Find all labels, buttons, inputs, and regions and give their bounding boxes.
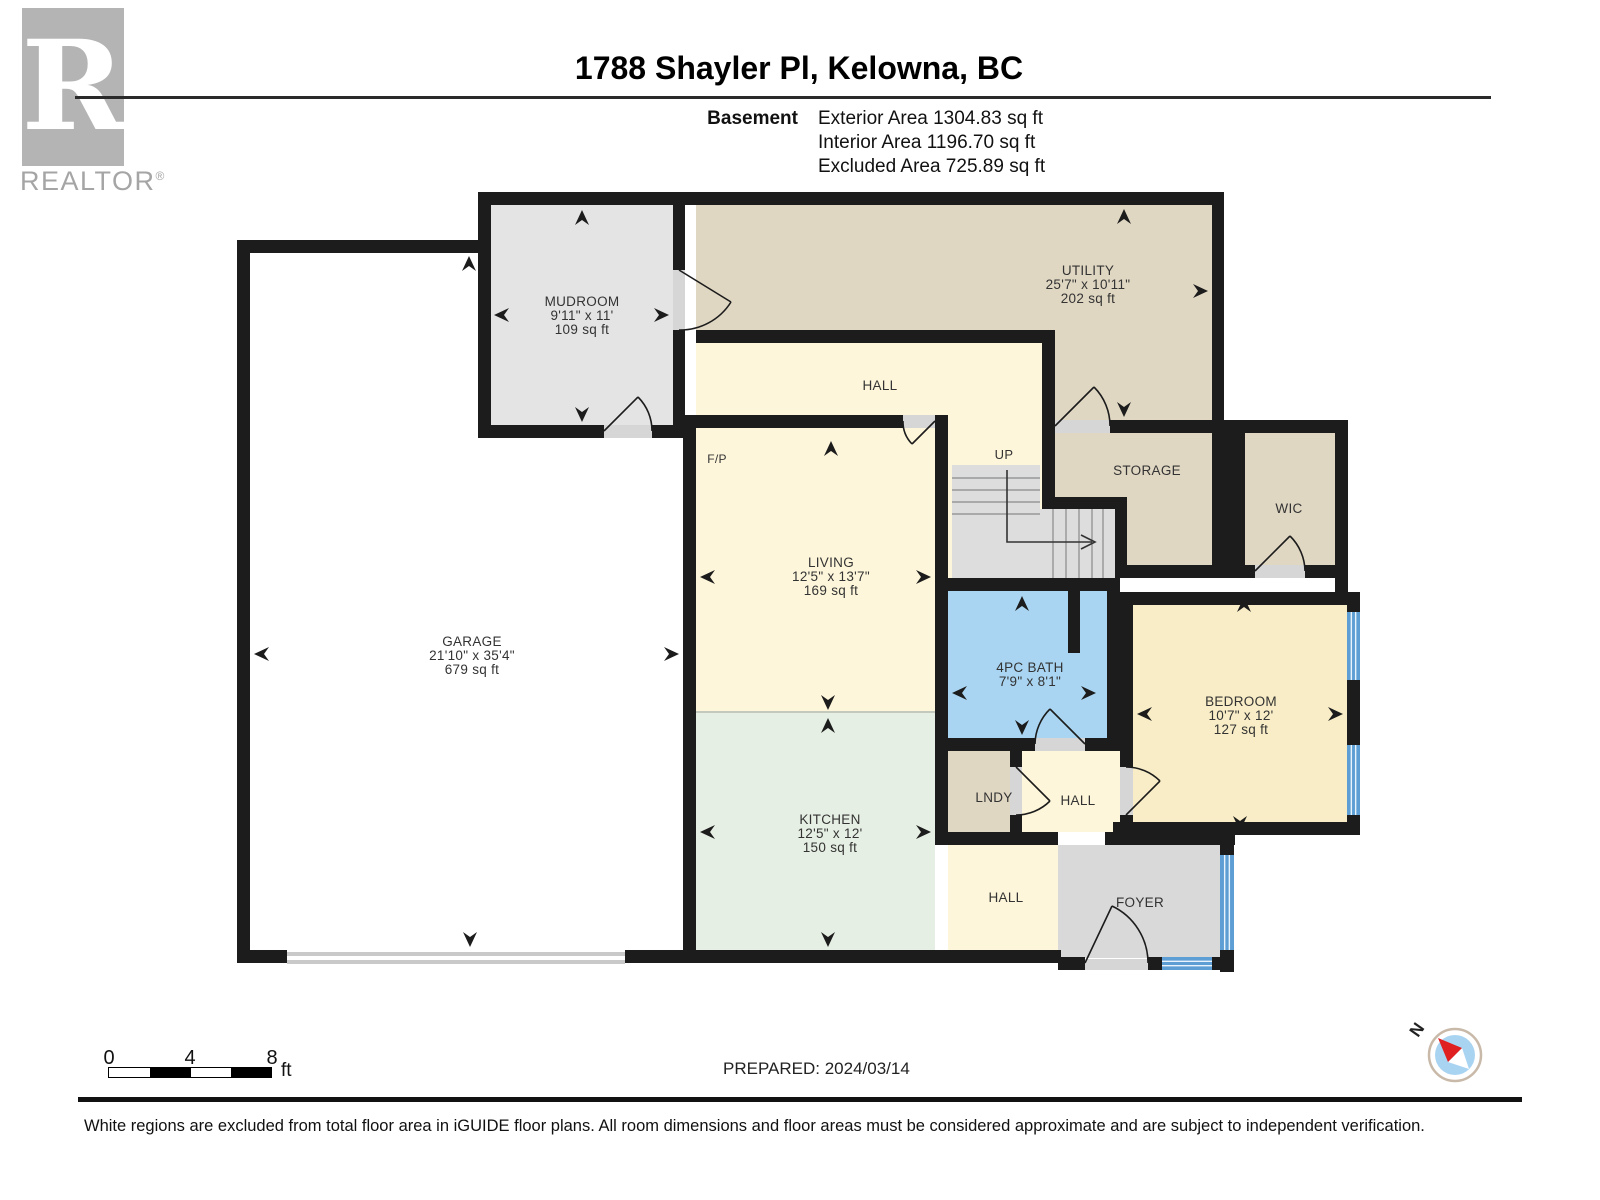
scale-unit: ft: [281, 1060, 292, 1082]
room-label: 150 sq ft: [803, 840, 858, 855]
footer-divider: [78, 1097, 1522, 1102]
room-label: LIVING: [808, 555, 854, 570]
wall: [1115, 565, 1224, 578]
garage-door-bar: [287, 952, 625, 956]
wall: [1220, 832, 1234, 855]
wall: [696, 330, 1042, 343]
room-label: 169 sq ft: [804, 583, 859, 598]
door-opening: [1055, 420, 1110, 433]
wall: [1010, 750, 1022, 767]
wall: [683, 437, 696, 963]
wall: [1105, 832, 1235, 845]
room-label: WIC: [1275, 501, 1302, 516]
door-opening: [1255, 565, 1305, 578]
scale-seg: [231, 1068, 271, 1077]
room-label: 21'10" x 35'4": [429, 648, 515, 663]
wall: [1068, 591, 1080, 653]
wall: [935, 738, 1035, 751]
wall: [1232, 565, 1255, 578]
prepared-date: PREPARED: 2024/03/14: [723, 1059, 910, 1079]
room-label: UP: [995, 447, 1014, 462]
wall: [478, 425, 604, 438]
room-label: FOYER: [1116, 895, 1164, 910]
room-label: 25'7" x 10'11": [1046, 277, 1131, 292]
wall: [1120, 592, 1133, 767]
wall: [1212, 192, 1224, 433]
wall: [1305, 565, 1348, 578]
stairs-area: [952, 465, 1040, 578]
window: [1347, 612, 1360, 680]
room-label: UTILITY: [1062, 263, 1114, 278]
wall: [683, 415, 903, 428]
wall: [935, 578, 1113, 591]
wall: [673, 205, 685, 270]
scale-bar: [108, 1067, 272, 1078]
room-label: 12'5" x 13'7": [792, 569, 870, 584]
room-label: GARAGE: [442, 634, 502, 649]
wall: [237, 240, 250, 963]
scale-seg: [109, 1068, 150, 1077]
room-wic: [1245, 433, 1335, 565]
wall: [237, 240, 491, 253]
wall: [1042, 497, 1127, 509]
room-label: BEDROOM: [1205, 694, 1277, 709]
wall: [1042, 330, 1055, 433]
wall: [696, 950, 1061, 963]
wall: [1110, 420, 1224, 433]
wall: [237, 950, 287, 963]
room-label: 9'11" x 11': [550, 308, 613, 323]
wall: [935, 832, 1058, 845]
room-label: MUDROOM: [545, 294, 620, 309]
wall: [1113, 592, 1360, 605]
wall: [478, 192, 491, 438]
wall: [478, 192, 1224, 205]
compass-n-label: N: [1406, 1019, 1429, 1040]
door-opening: [673, 270, 685, 330]
room-label: 109 sq ft: [555, 322, 610, 337]
room-label: HALL: [1061, 793, 1096, 808]
window: [1220, 855, 1234, 950]
room-label: HALL: [863, 378, 898, 393]
scale-seg: [191, 1068, 231, 1077]
window: [1162, 957, 1212, 970]
room-label: 7'9" x 8'1": [999, 674, 1061, 689]
wall: [935, 415, 948, 845]
wall: [1042, 420, 1055, 433]
wall: [1212, 420, 1348, 433]
wall: [1224, 433, 1245, 578]
room-label: F/P: [707, 452, 727, 466]
wall: [1058, 957, 1085, 970]
room-label: 679 sq ft: [445, 662, 500, 677]
wall: [1212, 957, 1234, 970]
room-hall-mid: [1022, 750, 1120, 832]
door-opening: [1035, 738, 1085, 751]
door-opening: [604, 425, 652, 438]
room-label: 12'5" x 12': [797, 826, 862, 841]
door-opening: [1120, 767, 1133, 815]
room-label: 10'7" x 12': [1208, 708, 1273, 723]
floorplan-page: R REALTOR® 1788 Shayler Pl, Kelowna, BC …: [0, 0, 1600, 1200]
stairs-area: [1040, 509, 1115, 578]
wall: [1148, 957, 1162, 970]
room-label: 202 sq ft: [1061, 291, 1116, 306]
disclaimer-text: White regions are excluded from total fl…: [84, 1117, 1524, 1136]
door-opening: [1085, 959, 1148, 970]
garage-door-bar: [287, 960, 625, 964]
scale-seg: [150, 1068, 191, 1077]
room-label: STORAGE: [1113, 463, 1181, 478]
wall: [1212, 433, 1224, 578]
room-label: LNDY: [975, 790, 1012, 805]
room-label: HALL: [989, 890, 1024, 905]
room-label: 4PC BATH: [996, 660, 1063, 675]
room-label: KITCHEN: [799, 812, 860, 827]
room-label: 127 sq ft: [1214, 722, 1269, 737]
compass-icon: N: [1398, 1008, 1498, 1098]
floorplan-drawing: MUDROOM9'11" x 11'109 sq ftUTILITY25'7" …: [0, 0, 1600, 1200]
window: [1347, 745, 1360, 815]
